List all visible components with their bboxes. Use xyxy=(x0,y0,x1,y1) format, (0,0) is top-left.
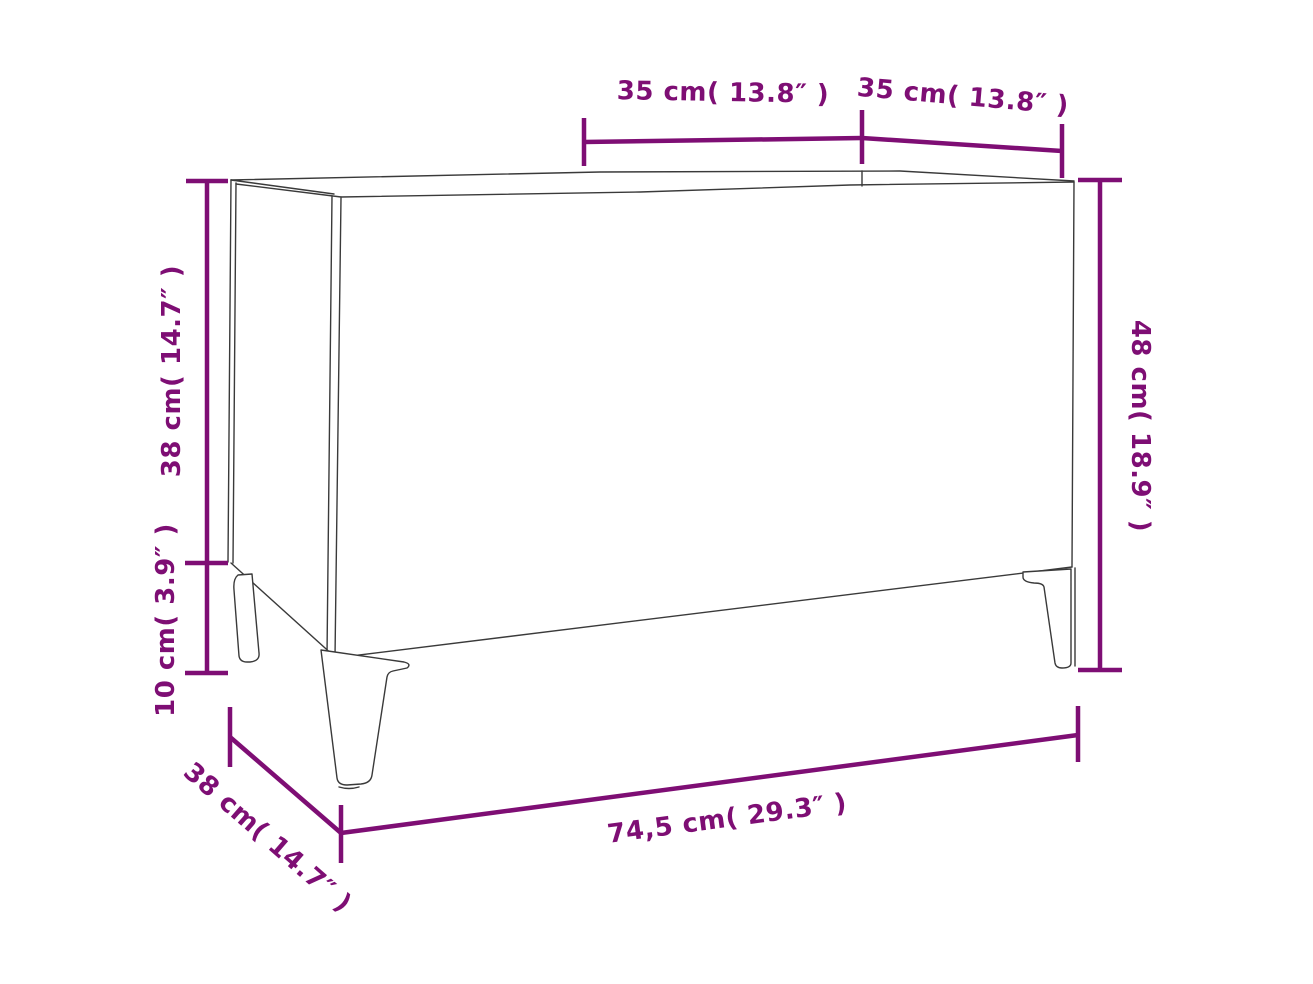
dim-label-body-height: 38 cm( 14.7″ ) xyxy=(157,265,187,477)
leg-front-left xyxy=(321,650,409,785)
leg-front-right xyxy=(1023,569,1071,668)
cabinet-front-left-edge-outer xyxy=(327,196,332,655)
dim-label-compartment-width-right: 35 cm( 13.8″ ) xyxy=(856,73,1070,121)
diagram-canvas: 35 cm( 13.8″ ) 35 cm( 13.8″ ) 38 cm( 14.… xyxy=(0,0,1313,984)
dim-label-overall-height: 48 cm( 18.9″ ) xyxy=(1125,320,1155,532)
dim-line-compartment-width-left xyxy=(584,138,862,142)
leg-front-left-foot xyxy=(339,787,359,789)
product-dimension-diagram: 35 cm( 13.8″ ) 35 cm( 13.8″ ) 38 cm( 14.… xyxy=(0,0,1313,984)
cabinet-top-left-bevel-outer xyxy=(231,180,334,194)
cabinet-back-left-edge-inner xyxy=(233,183,236,563)
cabinet-front-left-edge-inner xyxy=(335,198,341,657)
dim-line-compartment-width-right xyxy=(862,138,1062,151)
cabinet-top-back-edge xyxy=(231,171,1074,181)
dimension-lines xyxy=(185,110,1122,863)
cabinet-top-left-bevel-inner xyxy=(236,184,341,197)
cabinet-bottom-front-edge xyxy=(335,567,1072,658)
cabinet-drawing xyxy=(228,171,1075,789)
dim-label-compartment-width-left: 35 cm( 13.8″ ) xyxy=(617,76,830,110)
cabinet-back-left-edge-outer xyxy=(228,180,231,562)
cabinet-front-right-edge xyxy=(1072,182,1074,567)
dim-label-depth: 38 cm( 14.7″ ) xyxy=(177,757,357,919)
dim-label-leg-height: 10 cm( 3.9″ ) xyxy=(151,523,181,717)
dim-label-overall-width: 74,5 cm( 29.3″ ) xyxy=(606,788,849,850)
leg-back-left xyxy=(234,574,259,662)
cabinet-top-front-edge xyxy=(341,182,1074,197)
